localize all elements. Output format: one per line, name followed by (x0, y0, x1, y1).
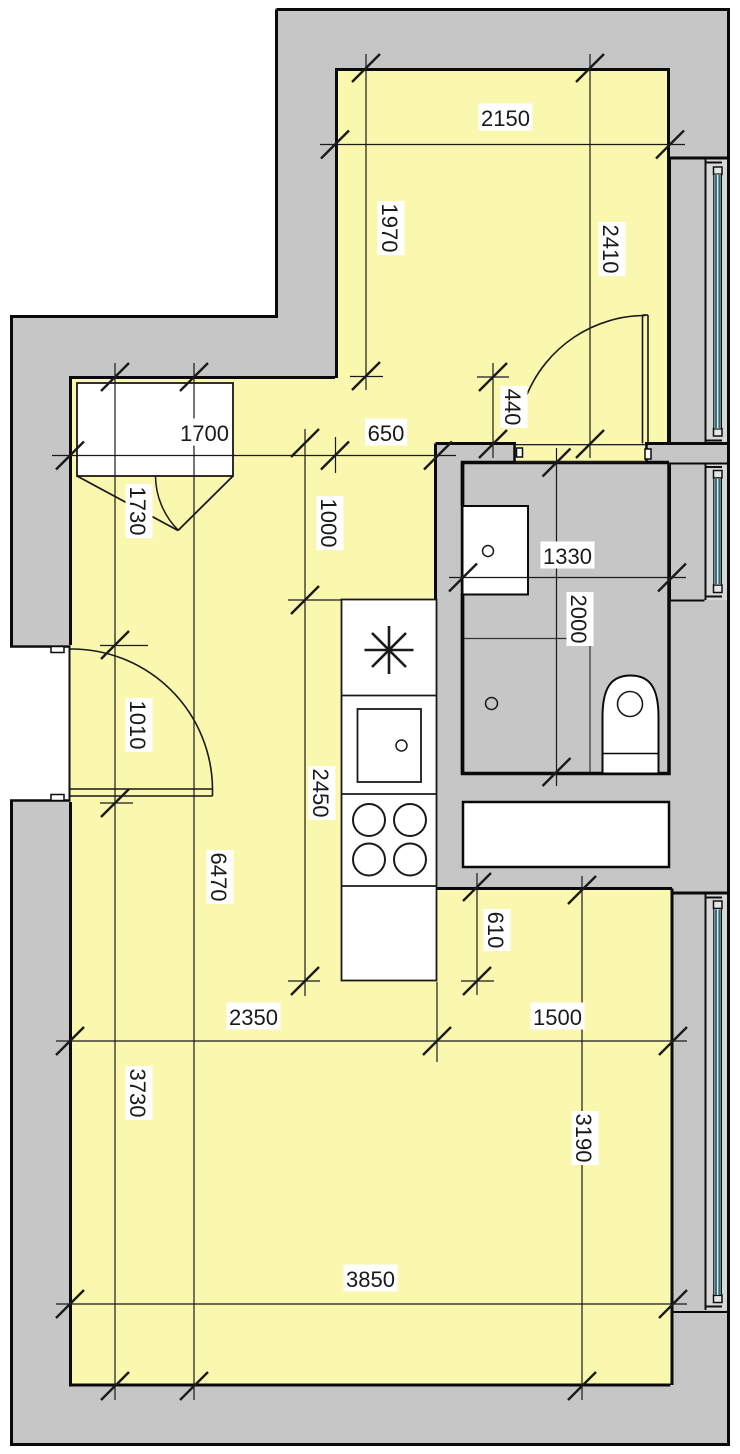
svg-text:3190: 3190 (571, 1114, 596, 1163)
svg-text:1730: 1730 (125, 487, 150, 536)
svg-text:2410: 2410 (598, 225, 623, 274)
svg-text:610: 610 (483, 912, 508, 949)
svg-text:1500: 1500 (533, 1005, 582, 1030)
svg-text:650: 650 (368, 421, 405, 446)
svg-text:2350: 2350 (229, 1005, 278, 1030)
svg-text:1700: 1700 (180, 421, 229, 446)
svg-text:2000: 2000 (566, 595, 591, 644)
svg-text:1330: 1330 (543, 544, 592, 569)
svg-text:3730: 3730 (125, 1069, 150, 1118)
svg-text:3850: 3850 (346, 1267, 395, 1292)
svg-text:6470: 6470 (206, 853, 231, 902)
svg-text:440: 440 (500, 389, 525, 426)
svg-text:1000: 1000 (316, 499, 341, 548)
svg-text:1010: 1010 (125, 701, 150, 750)
svg-text:1970: 1970 (377, 204, 402, 253)
svg-text:2450: 2450 (308, 769, 333, 818)
svg-text:2150: 2150 (481, 106, 530, 131)
